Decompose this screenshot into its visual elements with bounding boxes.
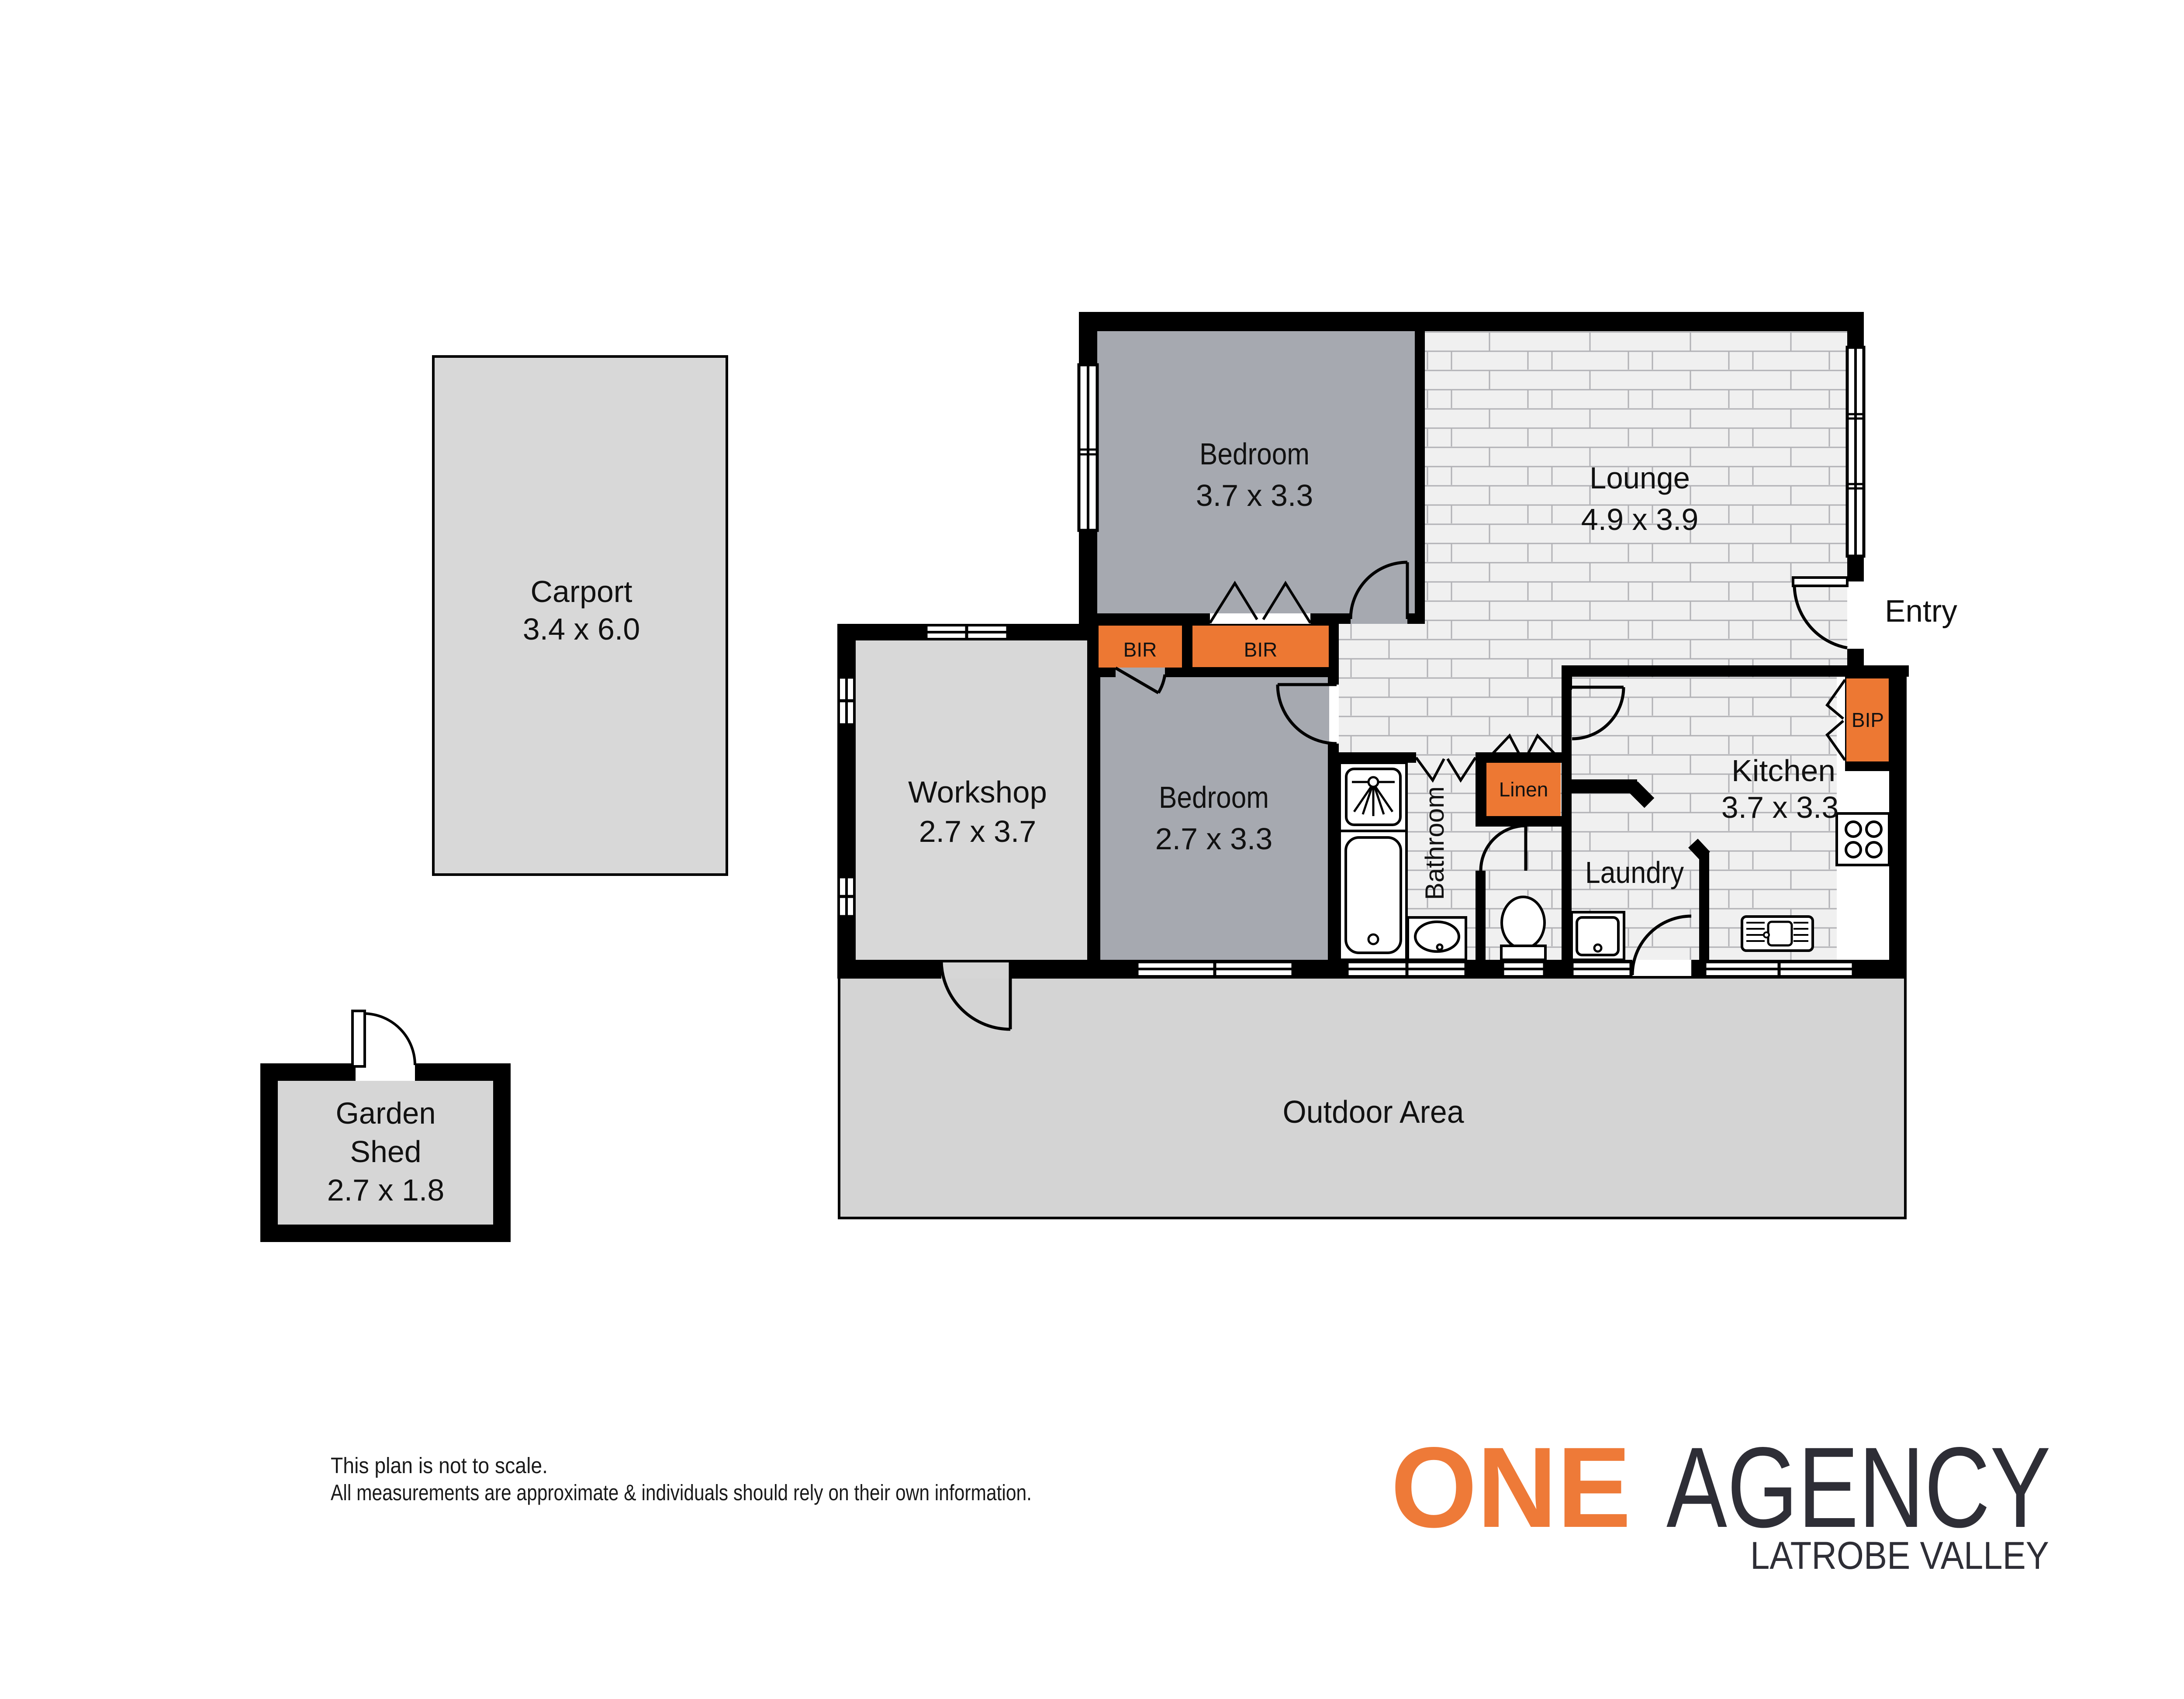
svg-text:Laundry: Laundry xyxy=(1585,855,1684,889)
svg-text:Carport: Carport xyxy=(531,574,632,609)
svg-text:Kitchen: Kitchen xyxy=(1731,754,1835,788)
svg-text:4.9 x 3.9: 4.9 x 3.9 xyxy=(1581,502,1699,536)
svg-text:BIP: BIP xyxy=(1852,709,1884,731)
svg-text:LATROBE VALLEY: LATROBE VALLEY xyxy=(1750,1533,2049,1577)
svg-text:ONE: ONE xyxy=(1391,1423,1631,1551)
svg-text:Linen: Linen xyxy=(1499,778,1548,801)
svg-text:3.7 x 3.3: 3.7 x 3.3 xyxy=(1196,478,1313,512)
svg-text:BIR: BIR xyxy=(1123,638,1157,661)
svg-text:Garden: Garden xyxy=(336,1096,436,1130)
svg-text:Bathroom: Bathroom xyxy=(1420,786,1449,900)
svg-text:3.7 x 3.3: 3.7 x 3.3 xyxy=(1721,790,1839,824)
svg-text:All measurements are approxima: All measurements are approximate & indiv… xyxy=(331,1480,1032,1505)
svg-text:Outdoor Area: Outdoor Area xyxy=(1283,1095,1465,1130)
svg-text:2.7 x 3.7: 2.7 x 3.7 xyxy=(919,814,1037,848)
svg-text:3.4 x 6.0: 3.4 x 6.0 xyxy=(523,612,640,646)
svg-text:Bedroom: Bedroom xyxy=(1199,437,1310,471)
svg-text:Workshop: Workshop xyxy=(908,775,1047,809)
svg-text:Bedroom: Bedroom xyxy=(1159,780,1269,814)
svg-text:This plan is not to scale.: This plan is not to scale. xyxy=(331,1453,548,1478)
svg-text:AGENCY: AGENCY xyxy=(1666,1423,2051,1551)
svg-text:Lounge: Lounge xyxy=(1590,461,1690,495)
svg-text:Shed: Shed xyxy=(350,1135,421,1169)
svg-text:BIR: BIR xyxy=(1244,638,1278,661)
svg-text:2.7 x 3.3: 2.7 x 3.3 xyxy=(1155,822,1273,856)
svg-text:2.7 x 1.8: 2.7 x 1.8 xyxy=(327,1173,445,1207)
svg-text:Entry: Entry xyxy=(1885,594,1957,629)
